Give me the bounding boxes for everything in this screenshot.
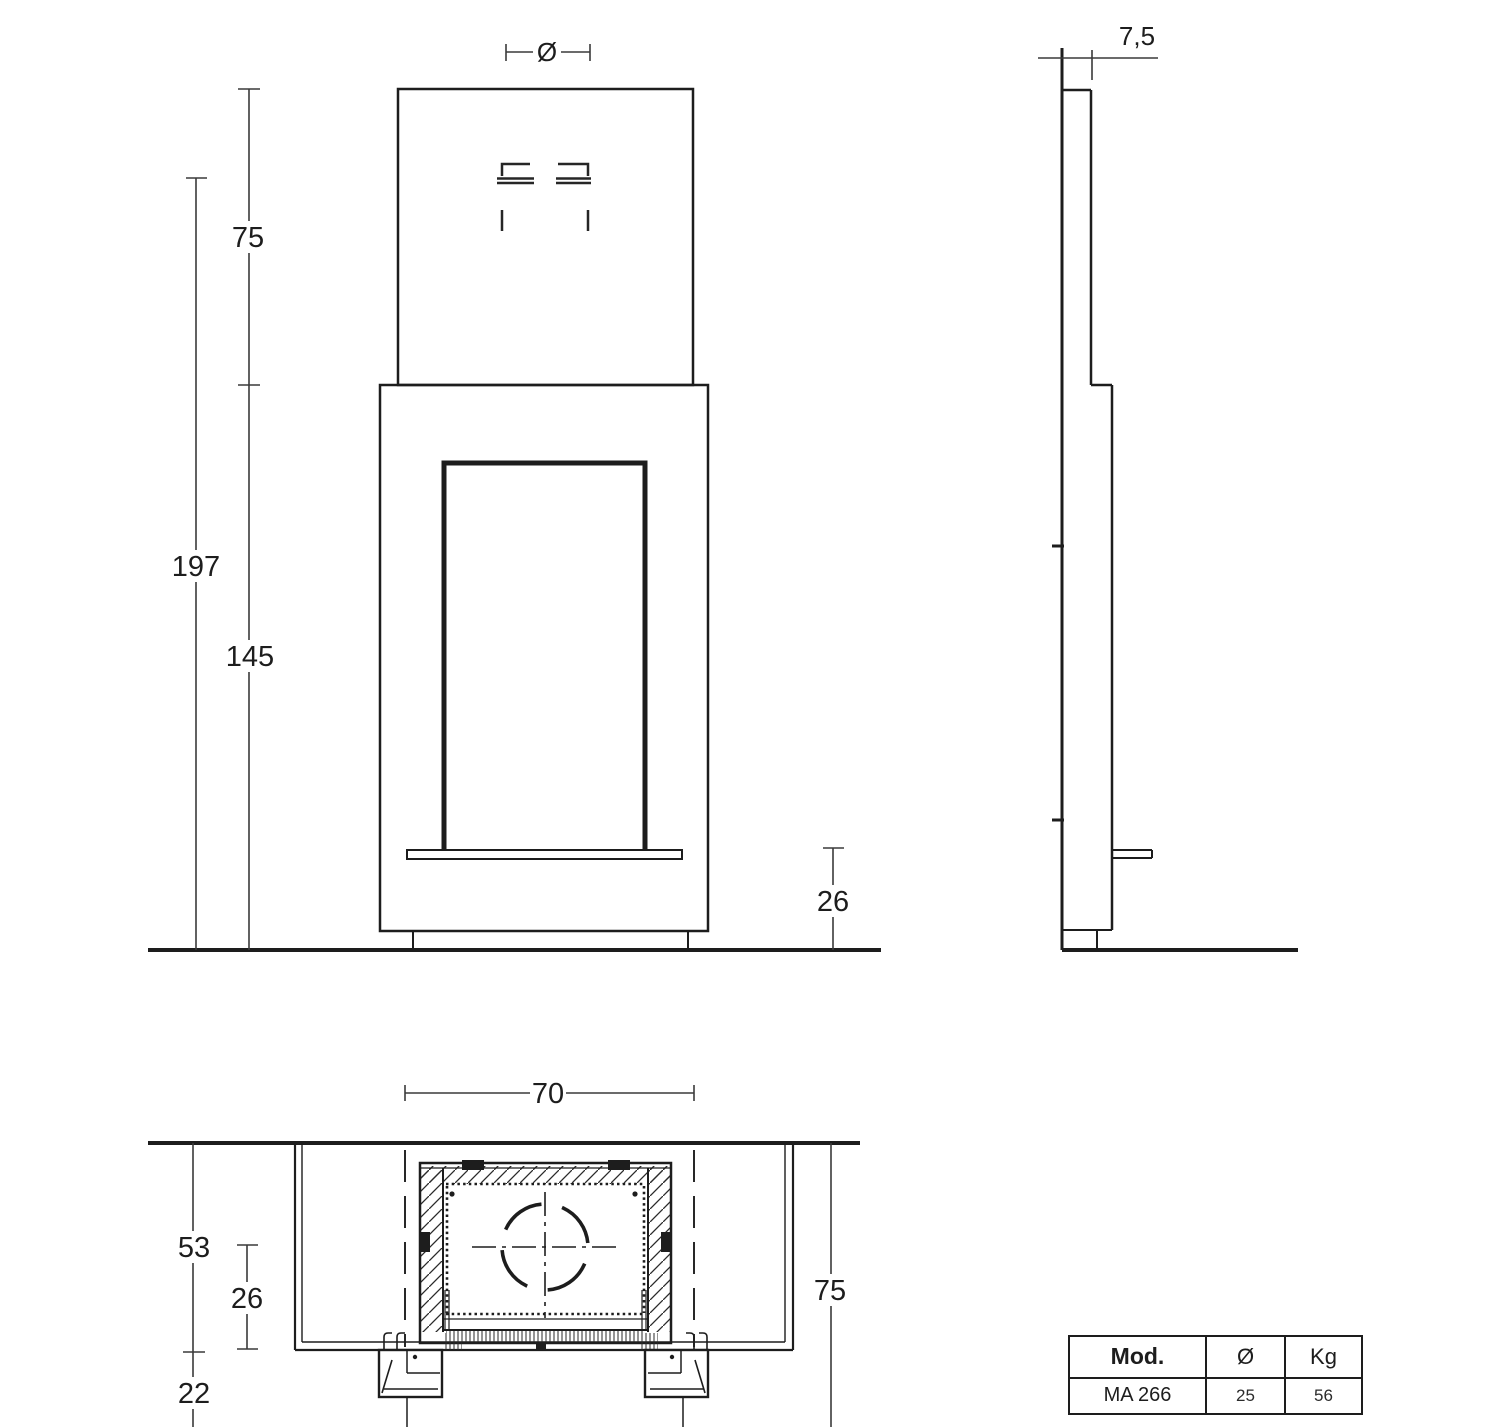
spec-value-model: MA 266 [1069,1378,1206,1414]
spec-value-diameter: 25 [1206,1378,1285,1414]
plan-foot-left [379,1350,442,1427]
dim-plan-side-label: 75 [814,1275,846,1307]
plan-dimensions [183,1085,831,1427]
technical-drawing-page: Ø 75 197 145 26 7,5 [0,0,1500,1427]
front-chimney-outline [398,89,693,385]
spec-value-kg: 56 [1285,1378,1362,1414]
front-firebox-opening [444,463,645,850]
dim-body-height-label: 145 [226,641,274,673]
dim-firebox-width-label: 70 [532,1078,564,1110]
spec-table-data-row: MA 266 25 56 [1069,1378,1362,1414]
front-dimensions [186,44,844,950]
dim-top-depth-label: 7,5 [1119,21,1155,51]
plan-foot-right [645,1350,708,1427]
spec-header-mod: Mod. [1069,1336,1206,1378]
front-shelf [407,850,682,859]
fireplace-technical-drawing: Ø 75 197 145 26 7,5 [0,0,1500,1427]
dim-flue-diameter-label: Ø [537,37,557,67]
spec-table: Mod. Ø Kg MA 266 25 56 [1068,1335,1363,1415]
front-flue-collar-dashed [497,164,591,231]
front-view [148,89,881,950]
spec-header-diameter: Ø [1206,1336,1285,1378]
dim-base-height-label: 26 [817,886,849,918]
dim-upper-height-label: 75 [232,222,264,254]
spec-header-kg: Kg [1285,1336,1362,1378]
dim-total-depth-label: 53 [178,1232,210,1264]
plan-firebox [384,1160,707,1350]
dim-total-height-label: 197 [172,551,220,583]
side-shelf [1112,850,1152,858]
side-view [1052,48,1298,950]
dim-front-overhang-label: 22 [178,1378,210,1410]
side-dimensions [1038,50,1158,80]
spec-table-header-row: Mod. Ø Kg [1069,1336,1362,1378]
dim-flue-axis-depth-label: 26 [231,1283,263,1315]
